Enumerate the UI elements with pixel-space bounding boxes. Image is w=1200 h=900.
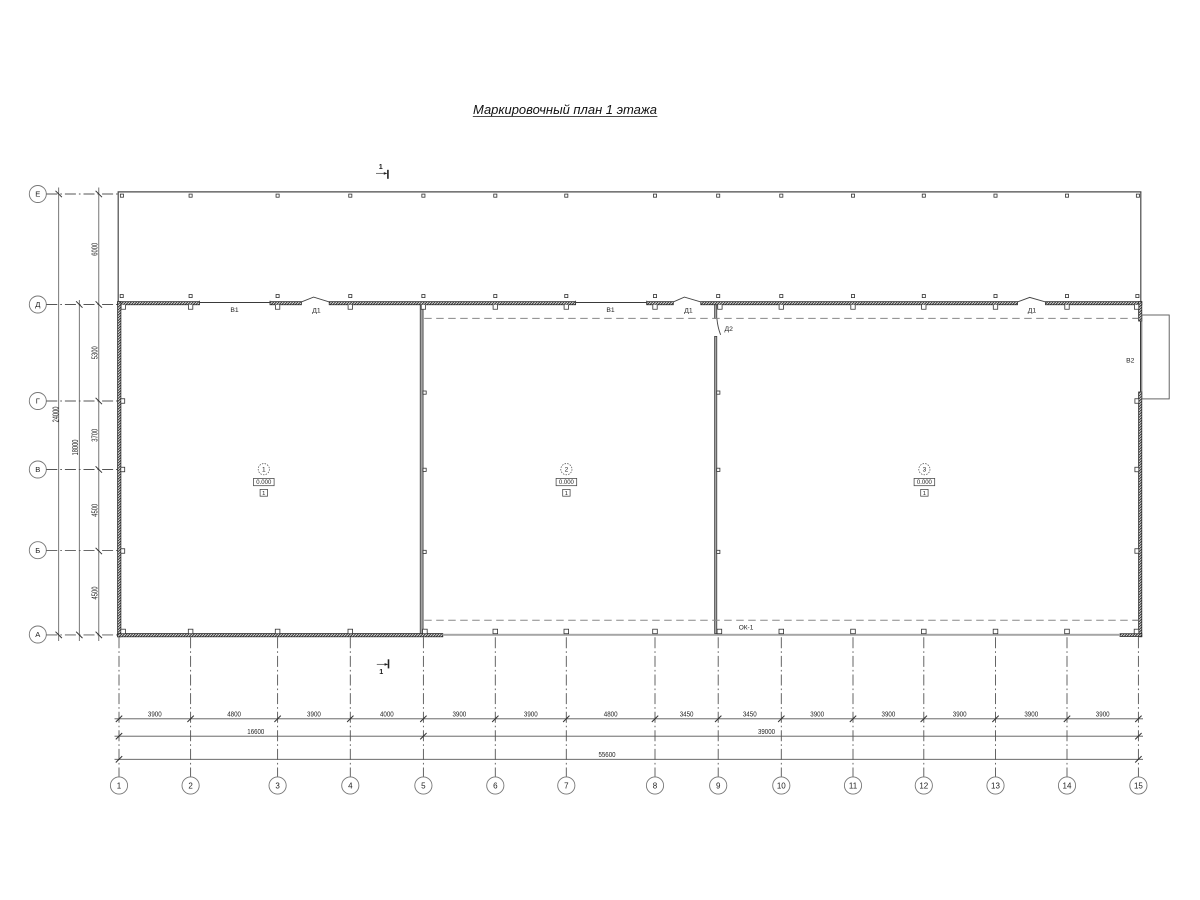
svg-text:3900: 3900 xyxy=(810,710,824,719)
svg-text:3450: 3450 xyxy=(680,710,694,719)
svg-text:7: 7 xyxy=(564,781,569,790)
svg-text:Е: Е xyxy=(35,190,40,199)
svg-text:12: 12 xyxy=(919,781,928,790)
svg-text:11: 11 xyxy=(849,781,858,790)
svg-text:2: 2 xyxy=(188,781,193,790)
svg-text:16600: 16600 xyxy=(247,727,264,736)
svg-text:3450: 3450 xyxy=(743,710,757,719)
svg-text:Б: Б xyxy=(35,546,40,555)
svg-text:4800: 4800 xyxy=(227,710,241,719)
svg-text:5300: 5300 xyxy=(90,346,99,359)
svg-text:1: 1 xyxy=(565,491,568,497)
svg-text:1: 1 xyxy=(379,667,383,676)
svg-text:1: 1 xyxy=(262,491,265,497)
svg-text:10: 10 xyxy=(777,781,786,790)
svg-text:В: В xyxy=(35,465,40,474)
svg-text:3900: 3900 xyxy=(1024,710,1038,719)
svg-text:9: 9 xyxy=(716,781,721,790)
svg-text:Д1: Д1 xyxy=(1028,307,1037,314)
svg-text:39000: 39000 xyxy=(758,727,775,736)
svg-text:Д: Д xyxy=(35,300,40,309)
svg-text:3900: 3900 xyxy=(524,710,538,719)
svg-text:15: 15 xyxy=(1134,781,1143,790)
svg-text:3900: 3900 xyxy=(452,710,466,719)
svg-text:0.000: 0.000 xyxy=(917,479,933,486)
svg-text:В1: В1 xyxy=(606,307,615,314)
svg-text:Д1: Д1 xyxy=(312,307,321,314)
svg-text:3900: 3900 xyxy=(148,710,162,719)
svg-text:3900: 3900 xyxy=(307,710,321,719)
svg-text:4500: 4500 xyxy=(90,503,99,516)
svg-text:1: 1 xyxy=(923,491,926,497)
svg-text:Маркировочный план 1 этажа: Маркировочный план 1 этажа xyxy=(473,103,657,117)
svg-text:4500: 4500 xyxy=(90,586,99,599)
svg-text:1: 1 xyxy=(379,162,383,171)
svg-text:Г: Г xyxy=(36,397,40,406)
svg-text:4: 4 xyxy=(348,781,353,790)
svg-text:18000: 18000 xyxy=(71,439,80,455)
svg-text:Д1: Д1 xyxy=(684,307,693,314)
svg-text:ОК-1: ОК-1 xyxy=(739,624,754,631)
svg-text:13: 13 xyxy=(991,781,1000,790)
svg-text:3700: 3700 xyxy=(90,428,99,441)
svg-text:4000: 4000 xyxy=(380,710,394,719)
svg-text:6: 6 xyxy=(493,781,498,790)
svg-text:3900: 3900 xyxy=(882,710,896,719)
svg-text:6000: 6000 xyxy=(90,242,99,255)
svg-text:3900: 3900 xyxy=(953,710,967,719)
svg-text:Д2: Д2 xyxy=(725,326,734,333)
svg-text:3: 3 xyxy=(923,467,927,474)
svg-text:В1: В1 xyxy=(230,307,239,314)
svg-text:2: 2 xyxy=(565,467,569,474)
svg-text:0.000: 0.000 xyxy=(559,479,575,486)
svg-text:1: 1 xyxy=(262,467,266,474)
svg-text:8: 8 xyxy=(653,781,658,790)
svg-text:0.000: 0.000 xyxy=(256,479,272,486)
svg-text:14: 14 xyxy=(1063,781,1072,790)
svg-text:55600: 55600 xyxy=(599,750,616,759)
svg-text:1: 1 xyxy=(117,781,122,790)
svg-text:3900: 3900 xyxy=(1096,710,1110,719)
svg-text:4800: 4800 xyxy=(604,710,618,719)
svg-text:24000: 24000 xyxy=(52,406,61,422)
svg-text:В2: В2 xyxy=(1126,358,1135,365)
svg-text:3: 3 xyxy=(275,781,280,790)
svg-text:5: 5 xyxy=(421,781,426,790)
